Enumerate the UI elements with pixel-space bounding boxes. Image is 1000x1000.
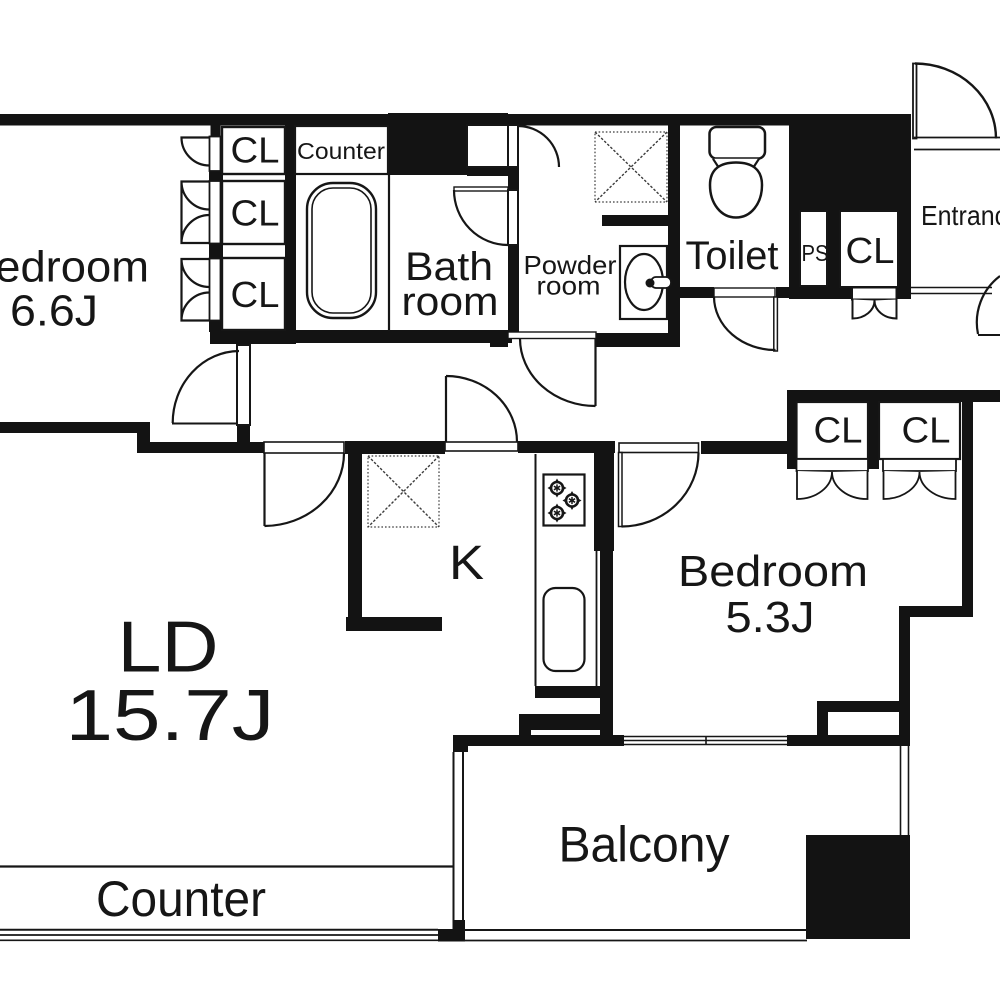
svg-text:Toilet: Toilet	[686, 234, 779, 278]
svg-text:CL: CL	[902, 410, 951, 451]
svg-text:CL: CL	[814, 410, 863, 451]
svg-text:6.6J: 6.6J	[10, 287, 98, 336]
svg-text:15.7J: 15.7J	[66, 676, 275, 756]
svg-text:Bedroom: Bedroom	[678, 547, 868, 596]
svg-text:Counter: Counter	[297, 138, 385, 164]
svg-text:5.3J: 5.3J	[726, 593, 815, 642]
svg-text:K: K	[449, 537, 484, 590]
svg-text:Bedroom: Bedroom	[0, 243, 149, 292]
svg-text:CL: CL	[846, 230, 895, 271]
svg-text:Counter: Counter	[96, 871, 266, 927]
svg-text:CL: CL	[231, 193, 280, 234]
svg-text:room: room	[402, 280, 499, 324]
svg-text:CL: CL	[231, 274, 280, 315]
svg-text:PS: PS	[802, 240, 829, 266]
svg-text:Balcony: Balcony	[559, 817, 730, 873]
svg-text:CL: CL	[231, 130, 280, 171]
svg-text:Entrance: Entrance	[921, 200, 1000, 231]
svg-text:room: room	[537, 271, 601, 301]
